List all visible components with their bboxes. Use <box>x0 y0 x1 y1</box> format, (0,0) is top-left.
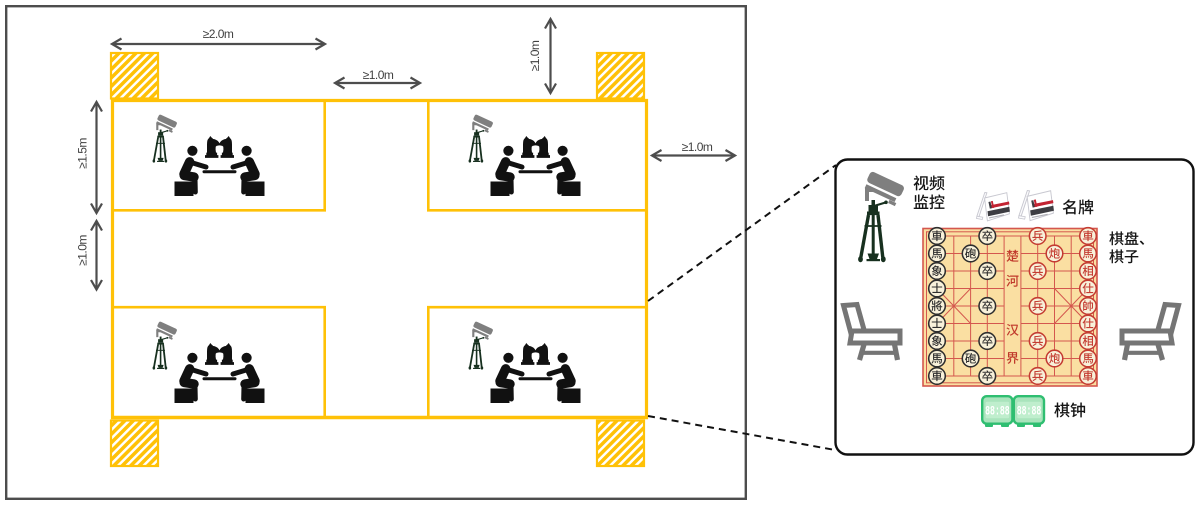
svg-text:≥2.0m: ≥2.0m <box>203 27 234 41</box>
svg-text:≥1.0m: ≥1.0m <box>76 235 90 266</box>
svg-text:≥1.0m: ≥1.0m <box>363 68 394 82</box>
svg-text:≥1.0m: ≥1.0m <box>682 140 713 154</box>
svg-text:≥1.5m: ≥1.5m <box>76 138 90 169</box>
svg-text:≥1.0m: ≥1.0m <box>528 40 542 71</box>
